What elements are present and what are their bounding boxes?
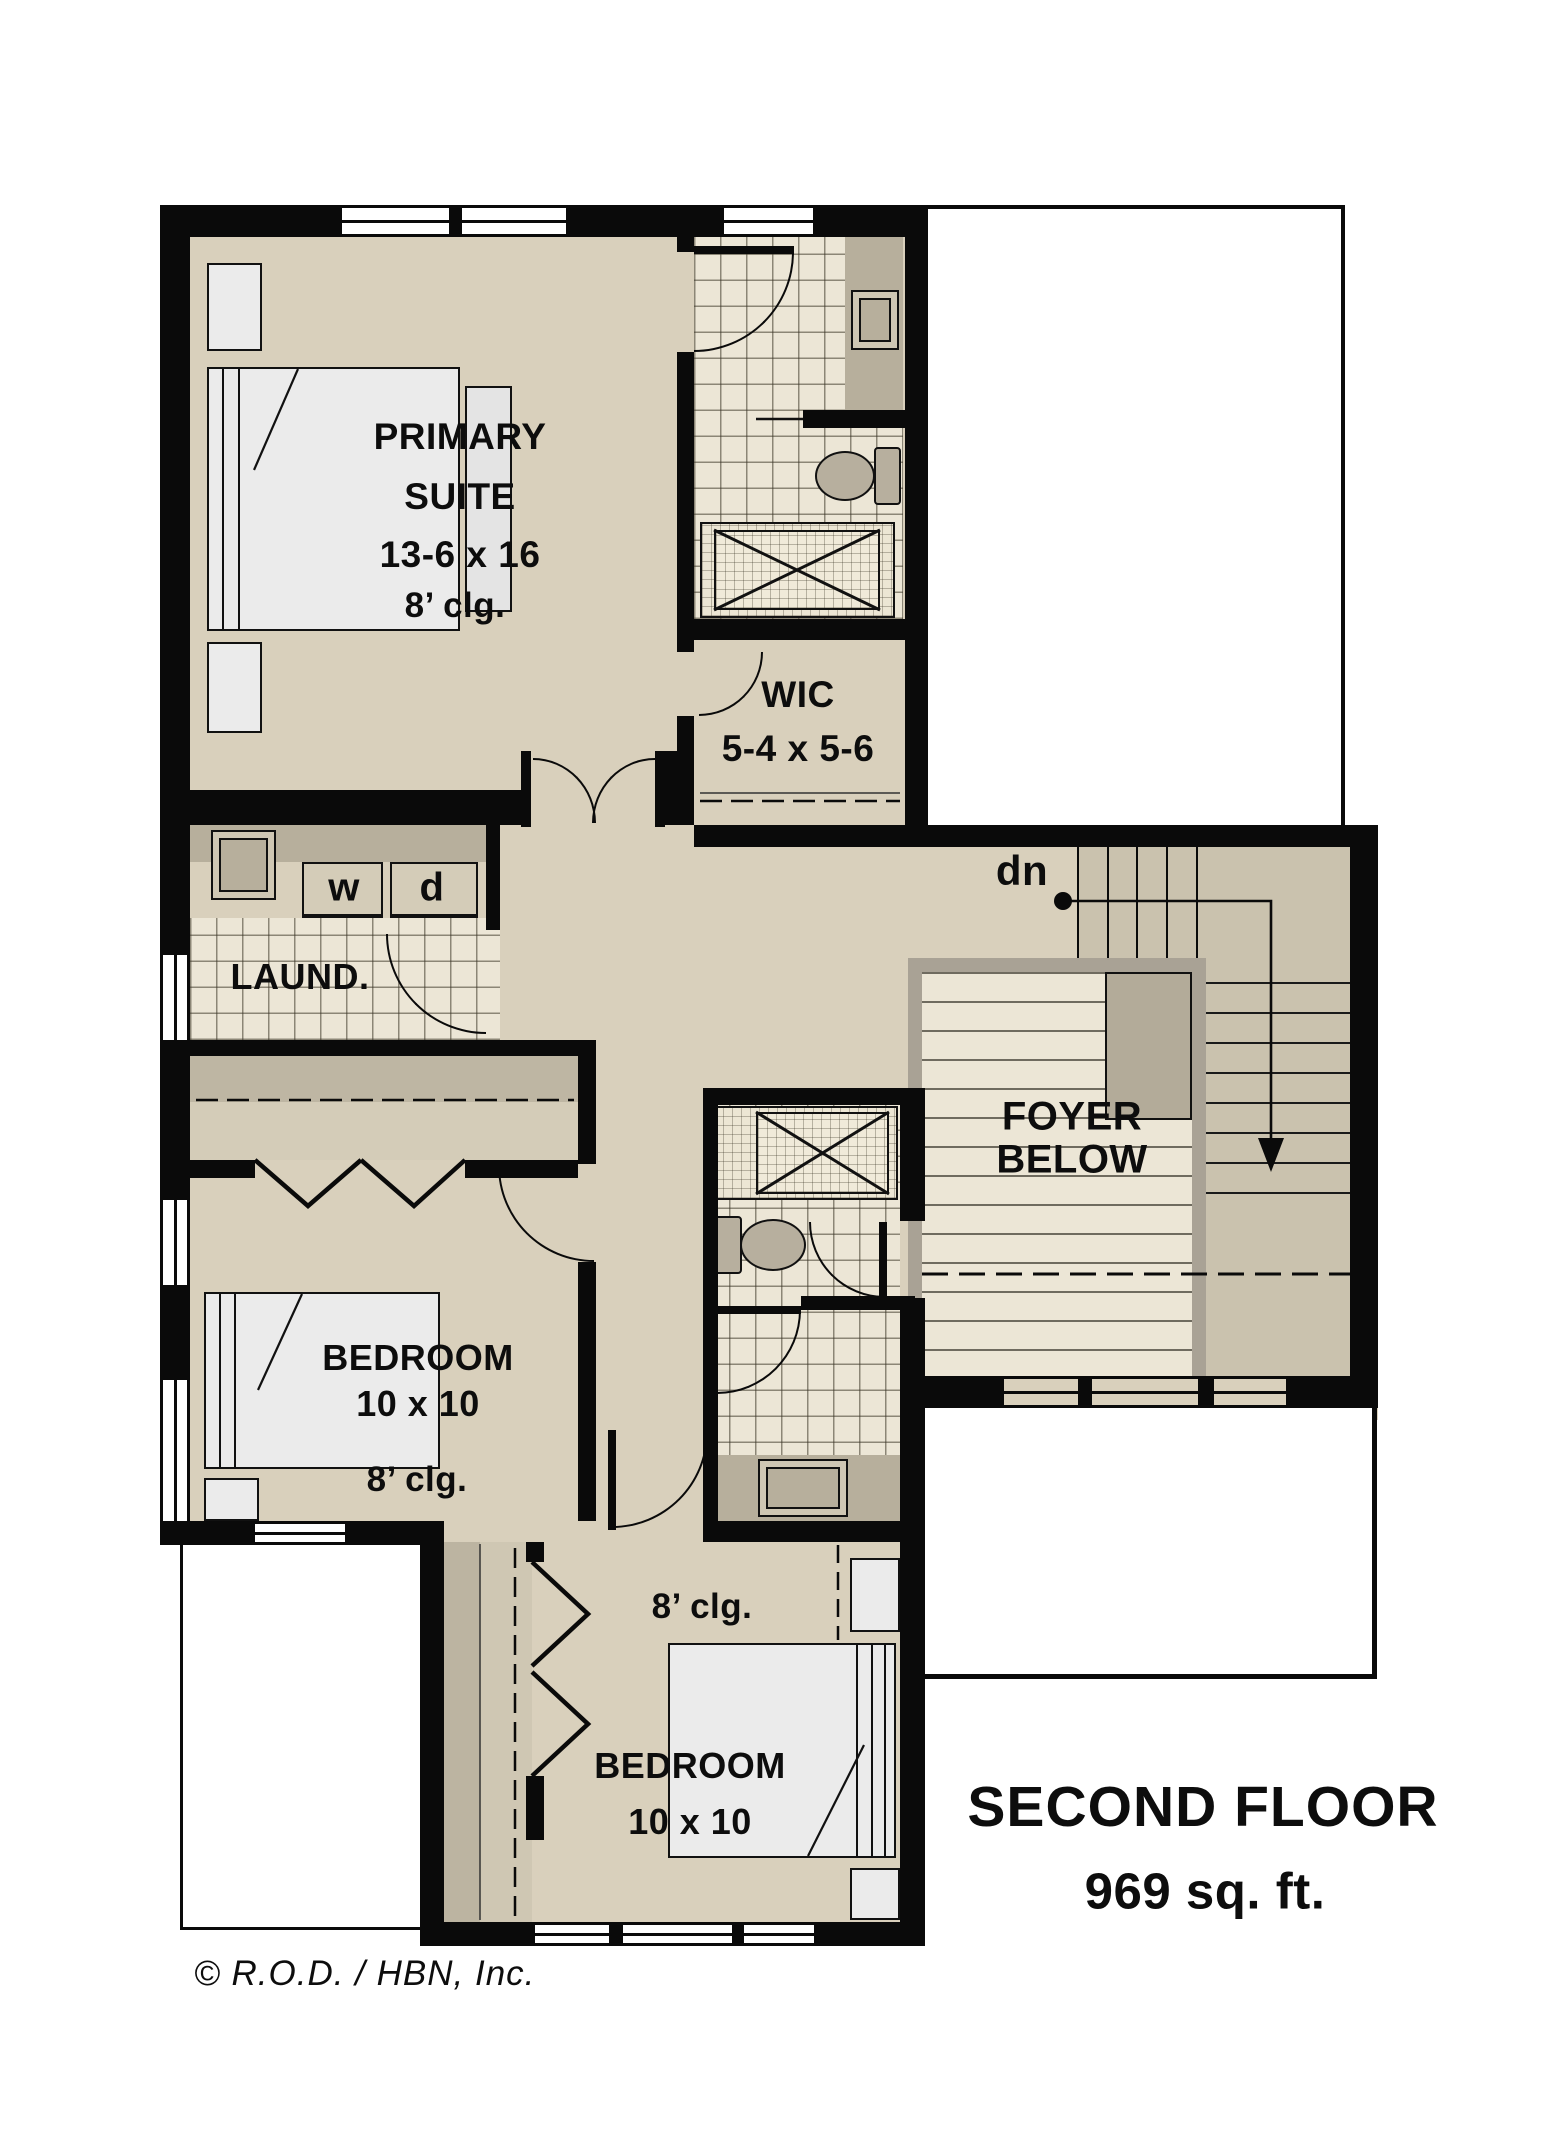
laundry-tub: [211, 830, 276, 900]
wall-segment: [578, 1262, 596, 1521]
window: [160, 1380, 190, 1530]
window: [255, 1521, 345, 1545]
wall-segment: [190, 1040, 596, 1056]
hall-bath-shower-pan: [756, 1112, 889, 1194]
wall-segment: [578, 1056, 596, 1164]
stair-tread-line: [1136, 847, 1138, 963]
stair-tread-line: [1077, 847, 1079, 963]
window: [1004, 1376, 1078, 1408]
bedroom-left-dimensions: 10 x 10: [356, 1383, 480, 1425]
wall-segment: [732, 1922, 744, 1946]
wic-label: WIC: [761, 674, 834, 716]
wall-segment: [703, 1088, 915, 1105]
bedroom1-bed: [204, 1292, 440, 1469]
bedroom2-bed-headboard-line: [871, 1645, 873, 1856]
wall-segment: [609, 1922, 623, 1946]
window: [744, 1922, 814, 1946]
bedroom1-bed-headboard-line: [219, 1294, 221, 1467]
copyright-text: © R.O.D. / HBN, Inc.: [194, 1954, 535, 1994]
window: [623, 1922, 732, 1946]
wall-segment: [160, 1285, 190, 1380]
wall-segment: [813, 205, 905, 237]
stair-upper-landing: [1077, 847, 1350, 963]
wall-segment: [677, 619, 905, 640]
primary-suite-label-2: SUITE: [404, 476, 515, 518]
wall-segment: [677, 237, 694, 252]
window: [160, 955, 190, 1040]
primary-shower-pan: [714, 530, 880, 610]
stair-lower-treads: [1206, 982, 1350, 1208]
door-leaf: [655, 751, 665, 827]
primary-nightstand-bottom: [207, 642, 262, 733]
primary-bath-sink: [851, 290, 899, 350]
bedroom-left-label: BEDROOM: [322, 1337, 514, 1379]
wall-segment: [486, 825, 500, 930]
stair-tread-line: [1107, 847, 1109, 963]
bedroom1-nightstand: [204, 1478, 259, 1521]
wall-segment: [703, 1521, 925, 1542]
bedroom2-bed-headboard-line: [884, 1645, 886, 1856]
open-area-bottom-right: [925, 1408, 1372, 1674]
outline-bottom-left-bottom: [180, 1927, 423, 1930]
primary-suite-dimensions: 13-6 x 16: [380, 534, 541, 576]
bedroom2-nightstand-top: [850, 1558, 900, 1632]
washer-label: w: [328, 866, 360, 911]
primary-toilet-tank: [874, 447, 901, 505]
foyer-rail-top: [908, 958, 1206, 972]
foyer-rail-right: [1192, 972, 1206, 1376]
window: [1092, 1376, 1198, 1408]
stairs-down-label: dn: [996, 847, 1048, 895]
wall-segment: [160, 1521, 255, 1545]
primary-suite-label: PRIMARY: [374, 416, 547, 458]
primary-nightstand-top: [207, 263, 262, 351]
outline-bottom-left-side: [180, 1542, 183, 1930]
open-area-top-right: [928, 209, 1341, 825]
outline-bottom-right-side: [1372, 1408, 1377, 1679]
wall-segment: [420, 1922, 535, 1946]
wall-segment: [526, 1776, 544, 1840]
laundry-label: LAUND.: [231, 956, 370, 998]
wall-segment: [677, 716, 694, 825]
wall-segment: [160, 790, 523, 825]
hall-bath-toilet-bowl: [740, 1219, 806, 1271]
window: [1214, 1376, 1286, 1408]
foyer-below-label-2: BELOW: [996, 1138, 1147, 1183]
wall-segment: [803, 410, 925, 428]
primary-bed-headboard-line: [222, 369, 224, 629]
wall-segment: [905, 205, 928, 825]
hall-bath-sink: [758, 1459, 848, 1517]
bedroom-left-ceiling: 8’ clg.: [367, 1460, 468, 1500]
wall-segment: [900, 1088, 925, 1221]
wall-segment: [420, 1521, 444, 1946]
bedroom-bottom-dimensions: 10 x 10: [628, 1801, 752, 1843]
window: [462, 205, 566, 237]
wall-segment: [160, 205, 190, 955]
outline-top-right-top: [905, 205, 1345, 209]
stair-tread-line: [1196, 847, 1198, 963]
closet2-shelf: [444, 1542, 480, 1922]
primary-bed-headboard-line: [238, 369, 240, 629]
bedroom-bottom-label: BEDROOM: [594, 1745, 786, 1787]
wall-segment: [703, 1105, 718, 1542]
floor-plan-page: PRIMARY SUITE 13-6 x 16 8’ clg. WIC 5-4 …: [0, 0, 1568, 2129]
wall-segment: [1078, 1376, 1092, 1408]
wall-segment: [801, 1296, 915, 1310]
wall-segment: [566, 205, 724, 237]
door-leaf: [521, 751, 531, 827]
bedroom-bottom-ceiling: 8’ clg.: [652, 1587, 753, 1627]
window: [160, 1200, 190, 1285]
stair-tread-line: [1166, 847, 1168, 963]
window: [724, 205, 813, 237]
open-area-bottom-left: [183, 1545, 420, 1927]
plan-title: SECOND FLOOR: [967, 1774, 1438, 1840]
wall-segment: [1198, 1376, 1214, 1408]
foyer-below-label: FOYER: [1002, 1095, 1142, 1140]
bedroom2-bed-headboard-line: [856, 1645, 858, 1856]
outline-top-right-side: [1341, 205, 1345, 847]
wall-segment: [1286, 1376, 1378, 1408]
dryer-label: d: [420, 866, 445, 911]
wall-segment: [1350, 825, 1378, 1408]
hall-bath-toilet-tank: [714, 1216, 742, 1274]
primary-suite-ceiling: 8’ clg.: [405, 586, 506, 626]
wall-segment: [677, 352, 694, 652]
window: [535, 1922, 609, 1946]
window: [342, 205, 449, 237]
wall-segment: [920, 1376, 1004, 1408]
wall-segment: [526, 1542, 544, 1562]
wic-dimensions: 5-4 x 5-6: [722, 728, 875, 770]
bedroom2-nightstand-bottom: [850, 1868, 900, 1920]
wall-segment: [190, 1160, 255, 1178]
primary-toilet-bowl: [815, 451, 875, 501]
plan-area: 969 sq. ft.: [1085, 1862, 1326, 1921]
wall-segment: [160, 1040, 190, 1200]
closet1-shelf: [190, 1056, 578, 1102]
wall-segment: [449, 205, 462, 237]
bedroom1-bed-headboard-line: [234, 1294, 236, 1467]
outline-bottom-right-bottom: [925, 1674, 1377, 1679]
closet1-floor: [190, 1102, 578, 1160]
wall-segment: [694, 825, 1350, 847]
